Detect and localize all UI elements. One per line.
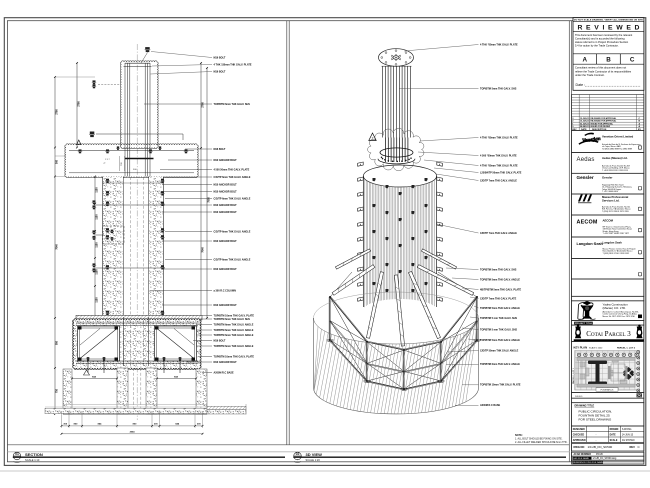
svg-text:TOP/BTM 10mm THK GALV. PLATE: TOP/BTM 10mm THK GALV. PLATE [214,355,255,358]
svg-text:C/D/TP 6mm THK GALV. ANGLE: C/D/TP 6mm THK GALV. ANGLE [214,258,251,261]
svg-text:C/D/TP 6mm THK GALV. ANGLE: C/D/TP 6mm THK GALV. ANGLE [214,176,251,179]
svg-text:Gensler: Gensler [577,175,594,180]
svg-text:4 500 50mm THK GALV. PLATE: 4 500 50mm THK GALV. PLATE [214,168,250,171]
svg-text:-: - [596,440,597,442]
svg-text:10-JUN-15: 10-JUN-15 [580,121,589,123]
svg-text:2700: 2700 [201,102,204,108]
svg-text:Aedas (Macau) Ltd.: Aedas (Macau) Ltd. [602,156,628,160]
svg-text:ISSUED: ISSUED [575,396,583,398]
svg-text:SCALE 1:20: SCALE 1:20 [306,458,321,462]
svg-text:DWG NO: DWG NO [574,445,585,449]
svg-text:TOP/BTM 6mm THK GALV. ANGLE: TOP/BTM 6mm THK GALV. ANGLE [214,345,254,348]
svg-text:844: 844 [174,375,178,378]
svg-text:T (853) 2833 1710 F 2833 1532: T (853) 2833 1710 F 2833 1532 [603,253,630,255]
svg-text:A200M R.C BASE: A200M R.C BASE [480,404,501,407]
svg-text:844: 844 [98,423,102,426]
svg-text:SCALE 1:1000: SCALE 1:1000 [589,346,603,349]
svg-text:TOP/BTM 5mm THK GALV. SHS: TOP/BTM 5mm THK GALV. SHS [480,87,517,90]
svg-text:R E V I E W E D: R E V I E W E D [577,24,639,31]
svg-text:M10 ANCHOR BOLT: M10 ANCHOR BOLT [214,159,238,162]
svg-text:B: B [606,57,611,64]
svg-text:TOP/BTM 5 mm THK GALV. SHS: TOP/BTM 5 mm THK GALV. SHS [480,317,517,320]
svg-text:Langdon Seah: Langdon Seah [603,241,623,245]
svg-text:Langdon·Seah: Langdon·Seah [577,242,604,246]
svg-text:300: 300 [197,424,201,426]
svg-text:+0: +0 [103,163,106,165]
svg-text:DATE: DATE [610,433,617,436]
svg-text:CAD FILE NAME: CAD FILE NAME [573,457,590,460]
svg-text:PARCEL 1, LOT 1: PARCEL 1, LOT 1 [572,367,575,384]
svg-text:02: 02 [296,452,300,456]
svg-text:C/D/TP 50mm THK GALV. ANGLE: C/D/TP 50mm THK GALV. ANGLE [480,349,519,352]
svg-text:12-JUN-15: 12-JUN-15 [580,118,589,120]
svg-text:M10 ANCHOR BOLT: M10 ANCHOR BOLT [214,190,238,193]
svg-text:L25/B4/TP 50mm THK GALV. PLATE: L25/B4/TP 50mm THK GALV. PLATE [480,171,522,174]
svg-text:AECOM: AECOM [603,219,614,223]
svg-text:4 THK *50mm THK GALV. PLATE: 4 THK *50mm THK GALV. PLATE [480,43,518,46]
svg-text:2. ALL FILLET WELDED SHOULD BE: 2. ALL FILLET WELDED SHOULD BE 6mm THK. [515,441,568,444]
svg-text:-: - [297,458,298,461]
svg-text:1150: 1150 [95,187,98,193]
svg-text:1150: 1150 [95,242,98,248]
svg-text:M10 ANCHOR BOLT: M10 ANCHOR BOLT [214,240,238,243]
svg-text:Macau Tel: 2875 3231 Fax: 287: Macau Tel: 2875 3231 Fax: 2875 3230 [603,316,635,318]
svg-text:TOP/BTM 6mm THK GALV. ANGLE: TOP/BTM 6mm THK GALV. ANGLE [214,334,254,337]
svg-text:REV: REV [630,445,636,449]
svg-text:SCALE: SCALE [610,439,618,442]
svg-text:1/1UB_FD_SK500: 1/1UB_FD_SK500 [588,445,613,449]
svg-text:800: 800 [74,424,78,426]
svg-text:A: A [583,57,588,64]
svg-text:S.WONG: S.WONG [622,429,632,431]
svg-text:FOUNTAIN 25: FOUNTAIN 25 [601,388,615,391]
svg-text:M10 ANCHOR BOLT: M10 ANCHOR BOLT [214,211,238,214]
svg-text:M10 ANCHOR BOLT: M10 ANCHOR BOLT [214,361,238,364]
svg-text:DRAWING TITLE: DRAWING TITLE [575,404,595,407]
svg-text:Aedas: Aedas [577,157,595,163]
svg-text:TOP/BTM 6mm THK GALV. SHS: TOP/BTM 6mm THK GALV. SHS [214,318,251,321]
svg-text:4B/TP/BTM 5mm THK GALV. PLATE: 4B/TP/BTM 5mm THK GALV. PLATE [480,288,521,291]
svg-text:VENETIAN: VENETIAN [584,140,597,143]
svg-text:2786: 2786 [55,109,58,115]
svg-text:M16 BOLT: M16 BOLT [214,339,226,342]
svg-text:M16 BOLT: M16 BOLT [214,70,226,73]
svg-text:Venetian Orient Limited: Venetian Orient Limited [602,135,634,139]
svg-text:under the Trade Contract.: under the Trade Contract. [575,73,605,77]
svg-text:Date :: Date : [576,83,586,87]
svg-text:REFERENCE DWG FILE NAME: REFERENCE DWG FILE NAME [573,461,604,464]
svg-text:500: 500 [133,169,137,171]
svg-text:TOP/BTM 5mm THK GALV. SHS: TOP/BTM 5mm THK GALV. SHS [480,268,517,271]
svg-text:This document has been reviewe: This document has been reviewed by the r… [575,33,633,37]
svg-text:M16 BOLT: M16 BOLT [214,148,226,151]
svg-text:Consultant(s) and is accorded: Consultant(s) and is accorded the follow… [575,37,625,41]
svg-text:-: - [17,458,18,461]
svg-text:844: 844 [175,423,179,426]
svg-text:DESIGNED: DESIGNED [573,429,585,431]
svg-text:TOP/BTM 10mm THK GALV. PLATE: TOP/BTM 10mm THK GALV. PLATE [480,384,521,387]
svg-text:4 THK *50mm THK GALV. PLATE: 4 THK *50mm THK GALV. PLATE [480,136,518,139]
svg-text:AS SHOWN: AS SHOWN [622,439,635,442]
svg-text:RE-ISSUED FOR APPROVAL: RE-ISSUED FOR APPROVAL [591,117,617,120]
svg-text:300: 300 [154,424,158,426]
svg-text:T +852 2587 1668 F 2587 1877: T +852 2587 1668 F 2587 1877 [603,233,630,235]
svg-text:SECTION: SECTION [25,452,43,457]
svg-text:TOP/BTM 6mm THK GALV. SHS: TOP/BTM 6mm THK GALV. SHS [214,103,251,106]
svg-text:TOP/BTM 5mm THK GALV. ANGLE: TOP/BTM 5mm THK GALV. ANGLE [480,307,520,310]
svg-text:CHECKED: CHECKED [573,434,585,436]
svg-text:844: 844 [92,375,96,378]
svg-text:M16 BOLT: M16 BOLT [214,56,226,59]
svg-text:ISSUED FOR REVIEW: ISSUED FOR REVIEW [591,126,611,128]
svg-text:1 X 7: 1 X 7 [105,159,111,161]
svg-text:7040: 7040 [55,244,58,250]
svg-text:1150: 1150 [95,214,98,220]
svg-text:status referred to in Project: status referred to in Project Procedure … [575,40,629,44]
svg-text:Tel (853) 2882 8888 Fax 2882 8: Tel (853) 2882 8888 Fax 2882 8889 [602,148,632,150]
svg-text:700: 700 [121,162,123,166]
svg-text:KEY PLAN: KEY PLAN [574,346,588,350]
svg-text:4 THK *50mm THK GALV. PLATE: 4 THK *50mm THK GALV. PLATE [480,164,518,167]
svg-text:C/D/TP 6mm THK GALV. ANGLE: C/D/TP 6mm THK GALV. ANGLE [214,230,251,233]
svg-text:300: 300 [63,424,67,426]
svg-text:-: - [596,434,597,436]
svg-text:(Macau) CO. LTD.: (Macau) CO. LTD. [603,306,627,310]
svg-text:SCALE 1:10: SCALE 1:10 [25,458,40,462]
svg-text:relieve the Trade Contractor: relieve the Trade Contractor of its resp… [575,69,632,73]
svg-text:C: C [638,445,641,449]
svg-text:950: 950 [55,340,58,345]
svg-text:T +81 3 6406 6600: T +81 3 6406 6600 [602,191,618,193]
svg-text:1150: 1150 [95,269,98,275]
svg-text:C/D/TP 7mm THK GALV. ANGLE: C/D/TP 7mm THK GALV. ANGLE [480,179,517,182]
svg-text:DRAWN: DRAWN [610,428,619,431]
svg-text:DO NOT SCALE DRAWING. VERIFY A: DO NOT SCALE DRAWING. VERIFY ALL DIMENSI… [574,19,643,22]
svg-text:TOP/BTM 6mm THK GALV. ANGLE: TOP/BTM 6mm THK GALV. ANGLE [214,323,254,326]
svg-text:4 500 *50mm THK GALV. PLATE: 4 500 *50mm THK GALV. PLATE [480,154,517,157]
svg-text:7500: 7500 [207,197,210,203]
svg-text:14-JUN-15: 14-JUN-15 [622,434,634,436]
svg-text:M10 ANCHOR BOLT: M10 ANCHOR BOLT [214,304,238,307]
svg-text:COTAI PARCEL 3: COTAI PARCEL 3 [586,330,631,338]
svg-text:Consultant review of this docu: Consultant review of this document does … [575,66,626,70]
svg-text:01: 01 [15,452,19,456]
svg-text:TOP/BTM 5mm THK GALV. ANGLE: TOP/BTM 5mm THK GALV. ANGLE [480,278,520,281]
svg-text:800: 800 [133,424,137,426]
svg-text:C/D/TP 7mm THK GALV. ANGLE: C/D/TP 7mm THK GALV. ANGLE [480,232,517,235]
svg-text:2: 2 [372,137,374,141]
svg-text:4 THK 150mm THK GALV. PLATE: 4 THK 150mm THK GALV. PLATE [214,63,252,66]
svg-text:1150: 1150 [95,297,98,303]
svg-text:2964: 2964 [130,431,136,434]
svg-text:RE-ISSUED FOR APPROVAL: RE-ISSUED FOR APPROVAL [591,120,617,123]
svg-text:TOP/BTM 5 mm THK GALV. SHS: TOP/BTM 5 mm THK GALV. SHS [480,328,517,331]
svg-text:T +853 2833 1113 F 2833 1115: T +853 2833 1113 F 2833 1115 [602,170,628,172]
svg-text:TOP/BTM 6mm THK GALV. ANGLE: TOP/BTM 6mm THK GALV. ANGLE [214,329,254,332]
svg-text:M10 ANCHOR BOLT: M10 ANCHOR BOLT [214,204,238,207]
svg-text:ISSUED FOR APPROVAL: ISSUED FOR APPROVAL [591,122,614,125]
svg-text:Gensler: Gensler [602,176,613,180]
svg-text:Services Ltd.: Services Ltd. [602,198,620,202]
svg-text:02-JUN-15: 02-JUN-15 [580,123,589,125]
svg-text:APPROVED: APPROVED [573,439,586,442]
svg-text:C/D/TP 7mm THK GALV. PLATE: C/D/TP 7mm THK GALV. PLATE [480,297,517,300]
svg-text:PARCEL 1, LOT 2: PARCEL 1, LOT 2 [617,346,636,349]
svg-text:750: 750 [55,388,58,393]
svg-text:ACAD NUMBER: ACAD NUMBER [574,453,592,456]
svg-text:C: C [630,57,635,64]
svg-text:TOP/BTM 6mm THK GALV. ANGLE: TOP/BTM 6mm THK GALV. ANGLE [480,363,520,366]
svg-text:28-MAY-15: 28-MAY-15 [580,125,589,128]
svg-text:M10 ANCHOR BOLT: M10 ANCHOR BOLT [214,268,238,271]
svg-text:A200M R.C BASE: A200M R.C BASE [214,371,235,374]
svg-text:C/D/TP 6mm THK GALV. ANGLE: C/D/TP 6mm THK GALV. ANGLE [214,197,251,200]
svg-text:AECOM: AECOM [577,220,598,226]
svg-text:7040: 7040 [201,247,204,253]
svg-text:a 300 R.C COLUMN: a 300 R.C COLUMN [214,289,237,292]
svg-text:M10 ANCHOR BOLT: M10 ANCHOR BOLT [214,183,238,186]
svg-text:2786: 2786 [77,101,80,107]
svg-text:5.4 for action by the Trade Co: 5.4 for action by the Trade Contractor. [575,44,619,48]
svg-text:TOP/BTM 5mm THK GALV. ANGLE: TOP/BTM 5mm THK GALV. ANGLE [480,339,520,342]
svg-text:500: 500 [55,159,58,164]
svg-text:3D VIEW: 3D VIEW [306,452,323,457]
svg-text:FOR STEEL DRAWING: FOR STEEL DRAWING [579,418,612,422]
svg-text:T (853) 2871 2268 F 2871 2269: T (853) 2871 2268 F 2871 2269 [602,211,629,213]
